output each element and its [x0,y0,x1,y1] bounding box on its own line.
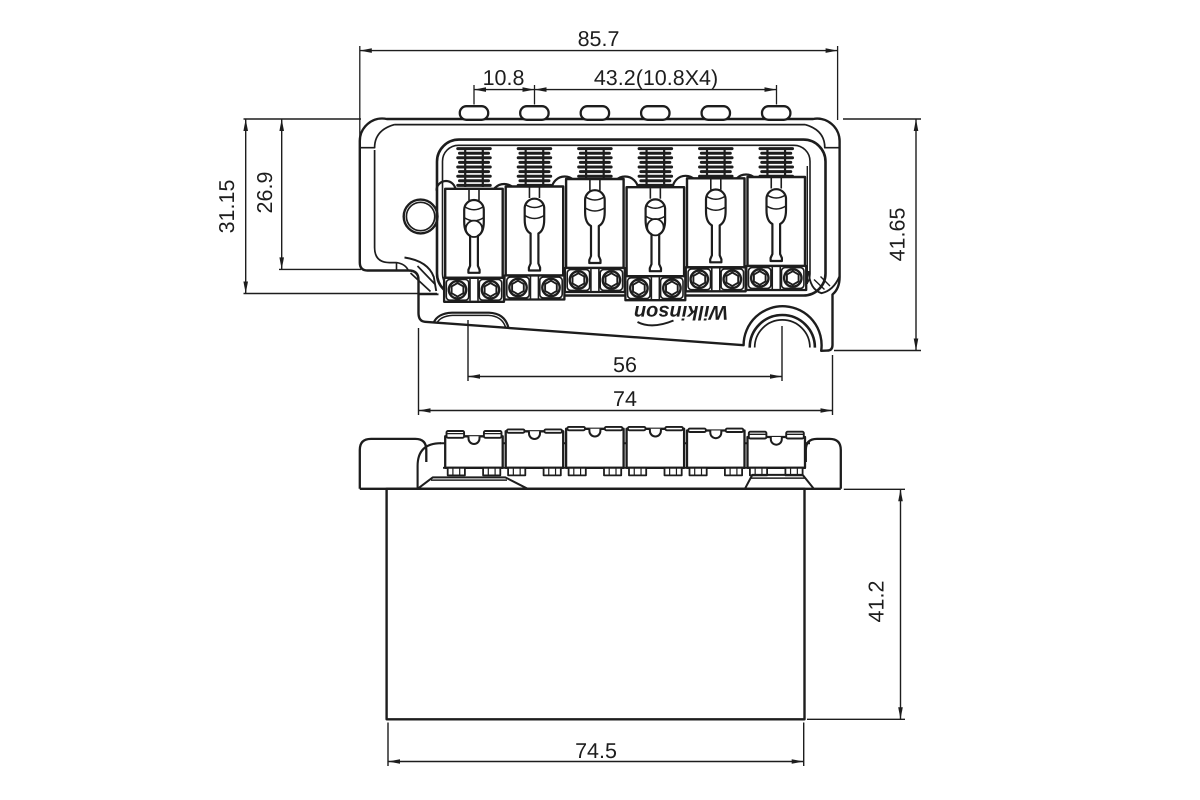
svg-text:85.7: 85.7 [578,27,620,51]
svg-text:Wilkinson: Wilkinson [634,301,728,323]
svg-text:74.5: 74.5 [575,739,617,763]
svg-text:26.9: 26.9 [253,172,277,214]
svg-text:41.65: 41.65 [886,208,910,262]
svg-text:10.8: 10.8 [483,66,525,90]
svg-text:56: 56 [613,353,637,377]
svg-text:74: 74 [613,387,637,411]
svg-text:43.2(10.8X4): 43.2(10.8X4) [594,66,718,90]
svg-text:31.15: 31.15 [215,180,239,234]
svg-text:41.2: 41.2 [865,581,889,623]
